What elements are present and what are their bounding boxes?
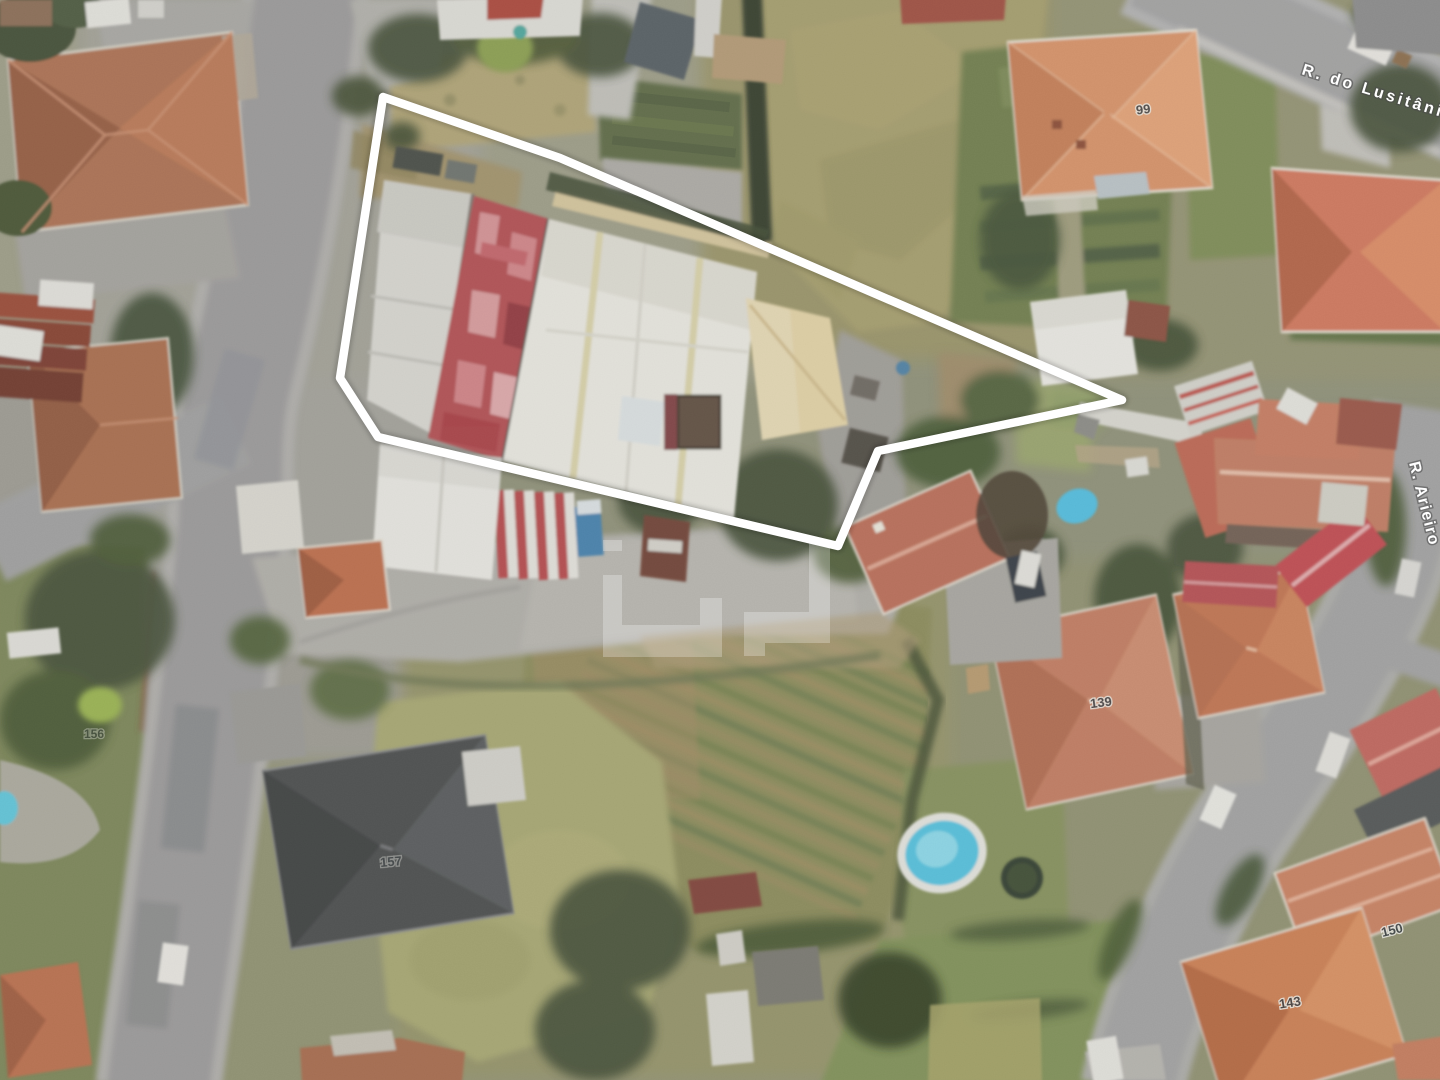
svg-text:139: 139 xyxy=(1089,694,1112,712)
svg-text:99: 99 xyxy=(1135,101,1151,118)
svg-text:157: 157 xyxy=(379,853,402,870)
svg-text:156: 156 xyxy=(84,727,104,741)
